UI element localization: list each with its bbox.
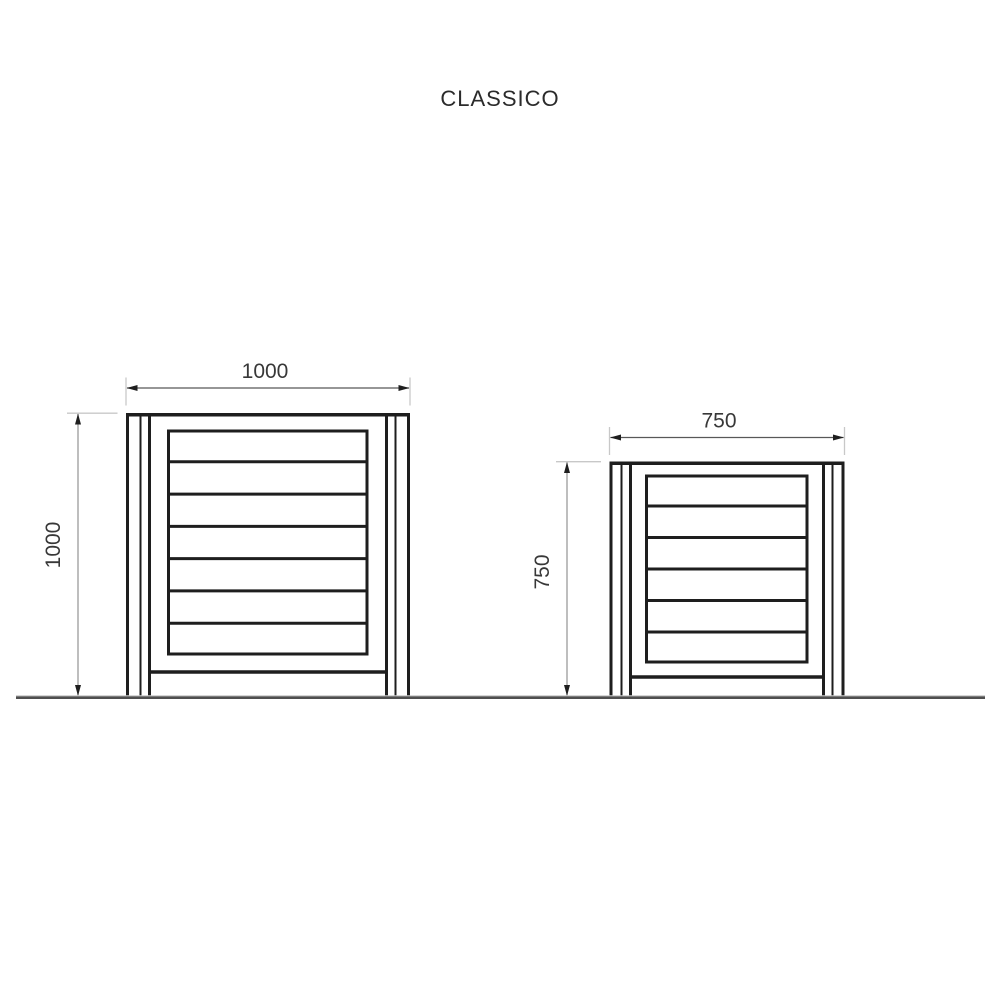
dimension-arrow-left [127,385,138,391]
width-dimension-label: 750 [701,410,736,433]
dimension-arrow-right [833,435,844,441]
ground [16,696,985,698]
slat-frame [169,431,368,654]
dimension-arrow-left [610,435,621,441]
technical-drawing-canvas: 10001000750750 [0,0,1000,1000]
dimension-arrow-top [75,414,81,425]
height-dimension-classico-750: 750 [531,462,601,696]
width-dimension-classico-1000: 1000 [126,360,410,406]
width-dimension-label: 1000 [242,360,289,383]
dimension-arrow-bottom [75,685,81,696]
height-dimension-label: 750 [531,554,554,589]
dimension-arrow-right [399,385,410,391]
panel-classico-750 [610,463,845,696]
width-dimension-classico-750: 750 [610,410,845,456]
dimension-arrow-bottom [564,685,570,696]
technical-drawing-page: { "title": "CLASSICO", "colors": { "line… [0,0,1000,1000]
height-dimension-classico-1000: 1000 [42,413,118,696]
panel-classico-1000 [126,415,410,697]
dimension-arrow-top [564,462,570,473]
height-dimension-label: 1000 [42,522,65,569]
